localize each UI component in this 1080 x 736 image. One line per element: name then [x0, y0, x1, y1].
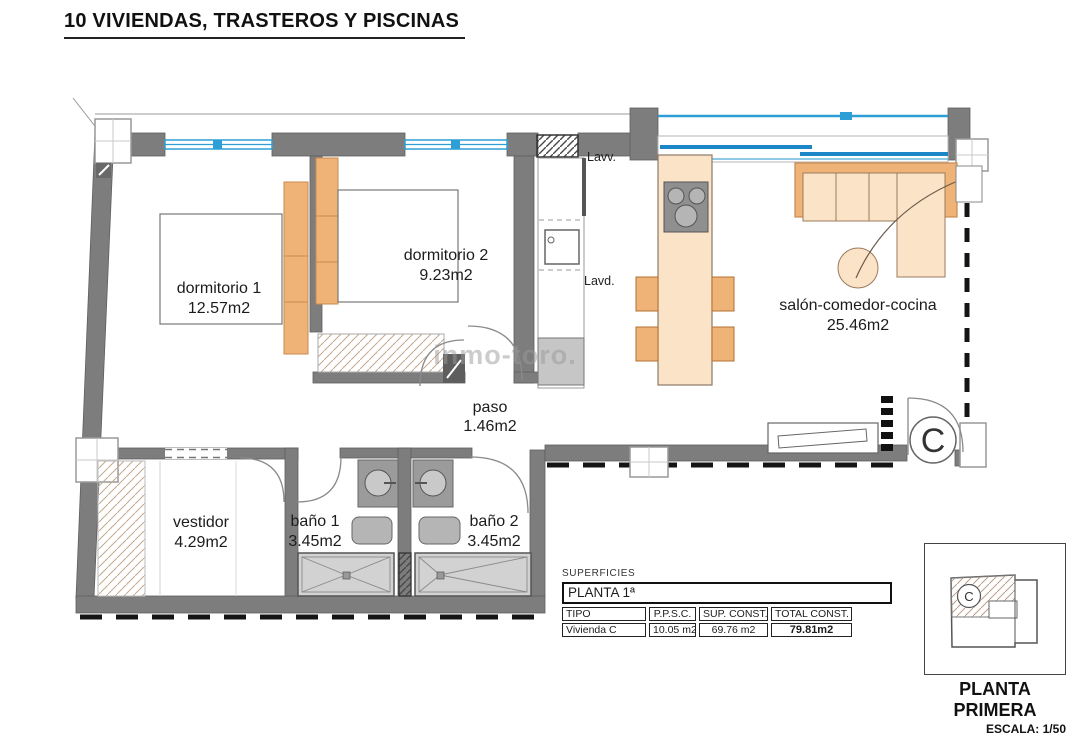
- toilet1-icon: [352, 517, 392, 544]
- label-salon-area: 25.46m2: [827, 317, 889, 334]
- label-banyo1-area: 3.45m2: [288, 533, 341, 550]
- cell-tipo: Vivienda C: [562, 623, 646, 637]
- label-dormitorio1-area: 12.57m2: [188, 300, 250, 317]
- col-header-ppsc: P.P.S.C.: [649, 607, 696, 621]
- label-lavd: Lavd.: [584, 274, 615, 288]
- dorm2-bed: [338, 190, 458, 302]
- cell-total-const: 79.81m2: [771, 623, 852, 637]
- surfaces-table: SUPERFICIES PLANTA 1ª TIPO P.P.S.C. SUP.…: [562, 568, 896, 637]
- sofa: [795, 163, 982, 288]
- key-plan-box: C: [924, 543, 1066, 675]
- watermark: inmo-toro.: [433, 340, 576, 370]
- dorm1-wardrobe: [284, 182, 308, 354]
- cell-ppsc: 10.05 m2: [649, 623, 696, 637]
- kitchen-sink-icon: [545, 230, 579, 264]
- toilet2-icon: [419, 517, 460, 544]
- dorm2-headboard: [316, 158, 338, 304]
- floor-plan: C inmo-toro. dormitorio 1 12.57m2 dormit…: [0, 0, 1080, 720]
- label-paso-area: 1.46m2: [463, 418, 516, 435]
- legend-title: PLANTA PRIMERA: [924, 679, 1066, 721]
- legend-scale: ESCALA: 1/50: [924, 722, 1066, 736]
- shower1-icon: [298, 553, 394, 596]
- label-banyo1-name: baño 1: [291, 513, 340, 530]
- unit-circle: C: [910, 417, 956, 463]
- col-header-tipo: TIPO: [562, 607, 646, 621]
- label-banyo2-name: baño 2: [470, 513, 519, 530]
- label-paso-name: paso: [473, 399, 508, 416]
- wall-opening: [165, 448, 227, 459]
- cell-sup-const: 69.76 m2: [699, 623, 768, 637]
- key-plan-legend: C PLANTA PRIMERA ESCALA: 1/50: [924, 543, 1066, 736]
- appliance-labels: Lavv. Lavd.: [584, 150, 616, 288]
- side-table: [956, 166, 982, 202]
- col-header-total-const: TOTAL CONST.: [771, 607, 852, 621]
- label-dormitorio2-area: 9.23m2: [419, 267, 472, 284]
- surfaces-label: SUPERFICIES: [562, 568, 896, 579]
- column-dashes: [881, 396, 893, 451]
- shaft-hatch: [399, 553, 411, 596]
- unit-letter: C: [921, 422, 946, 460]
- side-pouf: [838, 248, 878, 288]
- label-vestidor-area: 4.29m2: [174, 534, 227, 551]
- kitchen-island: [636, 155, 734, 385]
- col-header-sup-const: SUP. CONST.: [699, 607, 768, 621]
- label-dormitorio2-name: dormitorio 2: [404, 247, 489, 264]
- label-banyo2-area: 3.45m2: [467, 533, 520, 550]
- label-dormitorio1-name: dormitorio 1: [177, 280, 262, 297]
- label-vestidor-name: vestidor: [173, 514, 230, 531]
- facade-lines: [73, 98, 632, 130]
- chaise: [897, 173, 945, 277]
- corner-block: [96, 163, 111, 178]
- key-unit-letter: C: [964, 589, 973, 604]
- label-salon-name: salón-comedor-cocina: [779, 297, 937, 314]
- label-lavv: Lavv.: [587, 150, 616, 164]
- shower2-icon: [415, 553, 531, 596]
- page-title: 10 VIVIENDAS, TRASTEROS Y PISCINAS: [64, 10, 465, 39]
- floor-name: PLANTA 1ª: [562, 582, 892, 604]
- tv-unit: [768, 423, 878, 453]
- key-plan-thumbnail: C: [925, 544, 1065, 674]
